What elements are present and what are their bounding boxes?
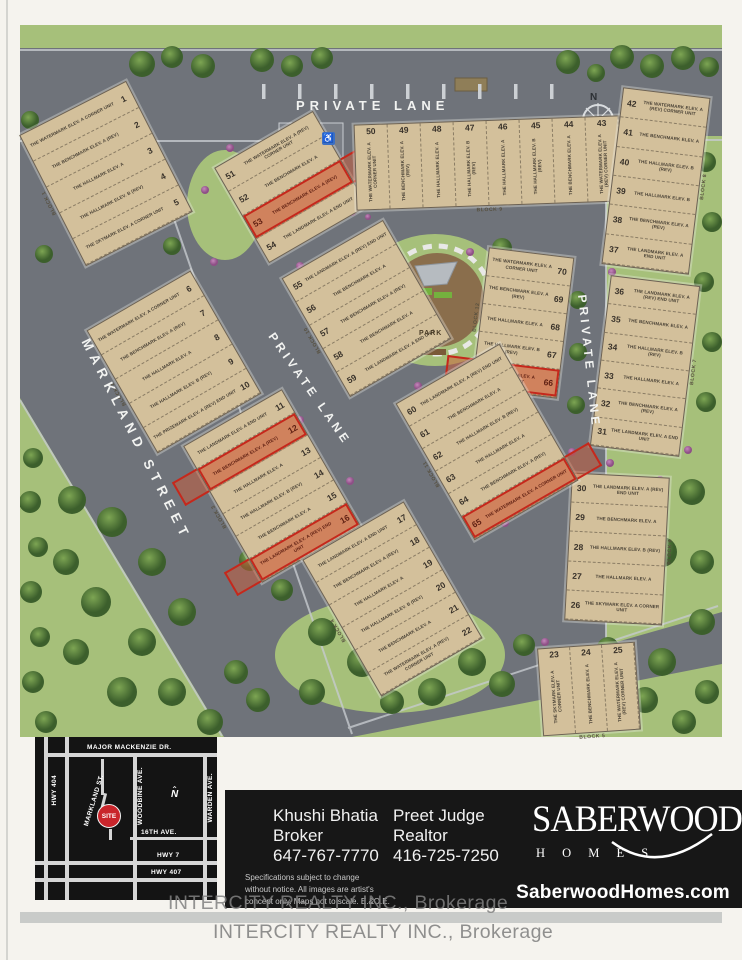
lot-model: THE LANDMARK ELEV. A (REV) END UNIT <box>627 287 696 305</box>
lot-number: 66 <box>540 376 556 388</box>
site-plan-page: PRIVATE LANE MARKLAND STREET PRIVATE LAN… <box>0 0 742 960</box>
lot-number: 40 <box>617 156 633 168</box>
lot-number: 70 <box>554 265 570 277</box>
lot-number: 39 <box>613 185 629 197</box>
lot-model: THE BENCHMARK ELEV. A (REV) <box>613 399 682 417</box>
lot-number: 48 <box>432 124 442 134</box>
tree <box>35 711 57 733</box>
inset-road-hwy404 <box>44 737 48 900</box>
agent-title: Broker <box>273 826 379 846</box>
inset-label-hwy7: HWY 7 <box>157 852 179 859</box>
lot-number: 13 <box>297 443 315 459</box>
lot-number: 29 <box>572 512 588 523</box>
tree <box>20 581 42 603</box>
tree <box>53 549 79 575</box>
tree <box>458 648 486 676</box>
lot-number: 24 <box>581 647 591 658</box>
tree <box>610 45 634 69</box>
tree <box>97 507 127 537</box>
parking-stall-line <box>442 84 446 99</box>
inset-location-map: MAJOR MACKENZIE DR. HWY 404 MARKLAND ST.… <box>35 737 217 900</box>
lot-number: 17 <box>392 510 410 526</box>
tree <box>28 537 48 557</box>
tree <box>695 680 719 704</box>
tree <box>311 47 333 69</box>
shrub <box>365 214 371 220</box>
lot-number: 27 <box>569 570 585 581</box>
tree <box>163 237 181 255</box>
lot-model: THE HALLMARK ELEV. B (REV) <box>531 131 543 201</box>
footer-panel: Khushi Bhatia Broker 647-767-7770 Preet … <box>225 790 742 908</box>
lot-number: 45 <box>531 120 541 130</box>
parking-stall-line <box>514 84 518 99</box>
agent-title: Realtor <box>393 826 499 846</box>
block-b8: 30THE LANDMARK ELEV. A (REV) END UNIT29T… <box>564 473 670 626</box>
inset-label-mackenzie: MAJOR MACKENZIE DR. <box>87 744 172 751</box>
lot-model: THE BENCHMARK ELEV. A <box>584 658 594 730</box>
lot-number: 10 <box>236 377 254 393</box>
tree <box>158 678 186 706</box>
tree <box>19 491 41 513</box>
lot-model: THE LANDMARK ELEV. A (REV) END UNIT <box>590 484 666 498</box>
parking-stall-line <box>478 84 482 99</box>
lot-number: 12 <box>284 420 302 436</box>
tree <box>281 55 303 77</box>
shrub <box>201 186 209 194</box>
inset-road-mackenzie <box>44 753 217 757</box>
lot-number: 21 <box>444 600 462 616</box>
tree <box>23 448 43 468</box>
inset-label-warden: WARDEN AVE. <box>207 773 214 823</box>
lot-45: 45THE HALLMARK ELEV. B (REV) <box>520 119 556 204</box>
parking-stall-line <box>298 84 302 99</box>
agent-name: Preet Judge <box>393 806 499 826</box>
lot-number: 26 <box>568 599 584 610</box>
tree <box>648 648 676 676</box>
tree <box>671 46 695 70</box>
inset-road-hwy7 <box>35 861 217 865</box>
lot-number: 28 <box>571 541 587 552</box>
lot-25: 25THE WATERMARK ELEV. A (REV) CORNER UNI… <box>602 643 640 731</box>
lot-model: THE HALLMARK ELEV. B (REV) <box>620 343 689 361</box>
tree <box>250 48 274 72</box>
agent-contact: Khushi Bhatia Broker 647-767-7770 <box>273 806 379 866</box>
lot-model: THE HALLMARK ELEV. B <box>629 189 695 202</box>
lot-number: 49 <box>399 125 409 135</box>
lot-model: THE BENCHMARK ELEV. A <box>636 131 702 144</box>
site-badge: SITE <box>97 804 121 828</box>
parking-stall-line <box>406 84 410 99</box>
lot-model: THE HALLMARK ELEV. A <box>585 574 661 583</box>
tree <box>107 677 137 707</box>
tree <box>30 627 50 647</box>
lot-48: 48THE HALLMARK ELEV. A <box>421 122 457 207</box>
lot-26: 26THE SKYMARK ELEV. A CORNER UNIT <box>565 590 662 624</box>
park-label: PARK <box>419 330 442 337</box>
lot-number: 46 <box>498 121 508 131</box>
accessible-parking-icon: ♿ <box>322 132 335 145</box>
inset-compass-n: N <box>171 792 178 799</box>
lot-model: THE HALLMARK ELEV. B (REV) <box>632 158 699 176</box>
tree <box>699 57 719 77</box>
saberwood-logo: SABERWOOD H O M E S SaberwoodHomes.com <box>508 794 738 906</box>
lot-number: 69 <box>551 293 567 305</box>
tree <box>690 550 714 574</box>
disclaimer-line: Specifications subject to change <box>245 872 390 884</box>
lot-number: 68 <box>547 321 563 333</box>
lot-44: 44THE BENCHMARK ELEV. A <box>552 118 588 203</box>
agent-name: Khushi Bhatia <box>273 806 379 826</box>
tree <box>224 660 248 684</box>
lot-number: 15 <box>323 488 341 504</box>
tree <box>246 688 270 712</box>
lot-number: 4 <box>154 169 172 185</box>
lot-number: 36 <box>611 285 627 297</box>
lot-number: 20 <box>431 578 449 594</box>
lot-number: 25 <box>613 645 623 656</box>
lot-model: THE SKYMARK ELEV. A CORNER UNIT <box>549 660 564 733</box>
tree <box>679 479 705 505</box>
parking-stall-line <box>370 84 374 99</box>
logo-swoosh <box>508 794 738 879</box>
tree <box>271 579 293 601</box>
block-b9: 50THE WATERMARK ELEV. A CORNER UNIT49THE… <box>354 115 623 210</box>
tree <box>168 598 196 626</box>
tree <box>696 392 716 412</box>
shrub <box>466 248 474 256</box>
tree <box>702 212 722 232</box>
watermark: INTERCITY REALTY INC., Brokerage <box>168 892 508 915</box>
parking-stall-line <box>550 84 554 99</box>
inset-road-markland <box>109 829 112 840</box>
tree <box>63 639 89 665</box>
lot-model: THE LANDMARK ELEV. A END UNIT <box>610 428 679 446</box>
lot-number: 47 <box>465 122 475 132</box>
lot-number: 43 <box>597 118 607 128</box>
lot-model: THE HALLMARK ELEV. A <box>500 132 507 202</box>
lot-number: 41 <box>620 127 636 139</box>
lot-number: 8 <box>208 329 226 345</box>
tree <box>556 50 580 74</box>
shrub <box>346 477 354 485</box>
inset-compass: ⌃ N <box>171 787 178 799</box>
lot-model: THE HALLMARK ELEV. A <box>617 374 685 387</box>
lot-model: THE HALLMARK ELEV. B (REV) <box>587 544 663 553</box>
lot-number: 23 <box>549 649 559 660</box>
inset-road-16th <box>130 837 217 840</box>
tree <box>689 609 715 635</box>
inset-label-hwy404: HWY 404 <box>51 775 58 806</box>
logo-homes: H O M E S <box>536 846 655 861</box>
tree <box>128 628 156 656</box>
shrub <box>541 638 549 646</box>
tree <box>138 548 166 576</box>
tree <box>58 486 86 514</box>
lot-50: 50THE WATERMARK ELEV. A CORNER UNIT <box>355 124 391 209</box>
tree <box>299 679 325 705</box>
tree <box>513 634 535 656</box>
shed <box>455 78 487 91</box>
lot-number: 14 <box>310 465 328 481</box>
lot-47: 47THE HALLMARK ELEV. B (REV) <box>454 121 490 206</box>
compass-n-label: N <box>590 92 597 103</box>
lot-model: THE BENCHMARK ELEV. A <box>588 515 664 524</box>
lot-number: 1 <box>115 91 133 107</box>
shrub <box>226 144 234 152</box>
tree <box>489 671 515 697</box>
tree <box>129 51 155 77</box>
tree <box>197 709 223 735</box>
tree <box>702 332 722 352</box>
parking-stall-line <box>334 84 338 99</box>
lot-number: 2 <box>128 117 146 133</box>
lot-number: 5 <box>167 194 185 210</box>
lot-model: THE BENCHMARK ELEV. A <box>624 318 692 331</box>
inset-label-16th: 16TH AVE. <box>141 829 177 836</box>
tree <box>418 678 446 706</box>
lot-model: THE WATERMARK ELEV. A (REV) CORNER UNIT <box>640 100 707 118</box>
lot-number: 37 <box>606 243 622 255</box>
inset-road-hwy404b <box>65 737 69 900</box>
lot-number: 30 <box>574 483 590 494</box>
lot-49: 49THE BENCHMARK ELEV. A (REV) <box>388 123 424 208</box>
playground-slide <box>434 292 452 298</box>
block-label: BLOCK 9 <box>476 207 502 214</box>
tree <box>567 396 585 414</box>
lot-number: 38 <box>609 214 625 226</box>
tree <box>81 587 111 617</box>
shrub <box>210 258 218 266</box>
lot-number: 11 <box>271 398 289 414</box>
inset-label-woodbine: WOODBINE AVE. <box>137 767 144 825</box>
tree <box>22 671 44 693</box>
tree <box>191 54 215 78</box>
lot-number: 50 <box>366 126 376 136</box>
inset-road-hwy407 <box>35 878 217 882</box>
lot-model: THE HALLMARK ELEV. A <box>483 315 547 328</box>
lot-number: 19 <box>418 555 436 571</box>
brand-website: SaberwoodHomes.com <box>508 882 738 904</box>
lot-model: THE BENCHMARK ELEV. A (REV) <box>486 285 551 303</box>
lot-number: 42 <box>624 98 640 110</box>
lot-model: THE BENCHMARK ELEV. A <box>566 130 573 200</box>
lot-model: THE WATERMARK ELEV. A CORNER UNIT <box>490 257 555 275</box>
lot-46: 46THE HALLMARK ELEV. A <box>487 120 523 205</box>
lot-number: 16 <box>336 511 354 527</box>
watermark: INTERCITY REALTY INC., Brokerage <box>213 921 553 944</box>
lot-model: THE SKYMARK ELEV. A CORNER UNIT <box>584 600 660 614</box>
lot-number: 3 <box>141 143 159 159</box>
lot-model: THE BENCHMARK ELEV. A (REV) <box>625 216 692 234</box>
lot-model: THE WATERMARK ELEV. A (REV) CORNER UNIT <box>613 656 628 729</box>
parking-stall-line <box>262 84 266 99</box>
lot-model: THE LANDMARK ELEV. A END UNIT <box>622 245 689 263</box>
lot-model: THE WATERMARK ELEV. A CORNER UNIT <box>366 137 378 207</box>
lot-model: THE BENCHMARK ELEV. A (REV) <box>399 136 411 206</box>
lot-number: 33 <box>601 369 617 381</box>
lot-number: 34 <box>604 341 620 353</box>
shrub <box>606 459 614 467</box>
lot-model: THE HALLMARK ELEV. A <box>434 135 441 205</box>
lot-number: 22 <box>457 623 475 639</box>
inset-label-hwy407: HWY 407 <box>151 869 182 876</box>
lot-number: 44 <box>564 119 574 129</box>
tree <box>640 54 664 78</box>
lot-model: THE HALLMARK ELEV. B (REV) <box>465 133 477 203</box>
lot-number: 9 <box>222 353 240 369</box>
agent-contact: Preet Judge Realtor 416-725-7250 <box>393 806 499 866</box>
scan-edge-artifact <box>6 0 8 960</box>
tree <box>161 46 183 68</box>
tree <box>672 710 696 734</box>
lot-number: 18 <box>405 533 423 549</box>
lot-number: 67 <box>544 348 560 360</box>
agent-phone: 416-725-7250 <box>393 846 499 866</box>
lot-number: 35 <box>608 313 624 325</box>
lot-number: 6 <box>180 280 198 296</box>
lot-number: 7 <box>194 304 212 320</box>
street-label-private-lane-top: PRIVATE LANE <box>296 98 449 113</box>
agent-phone: 647-767-7770 <box>273 846 379 866</box>
lot-model: THE WATERMARK ELEV. A (REV) CORNER UNIT <box>597 129 609 199</box>
block-b5: 23THE SKYMARK ELEV. A CORNER UNIT24THE B… <box>537 642 641 737</box>
shrub <box>684 446 692 454</box>
tree <box>587 64 605 82</box>
tree <box>35 245 53 263</box>
